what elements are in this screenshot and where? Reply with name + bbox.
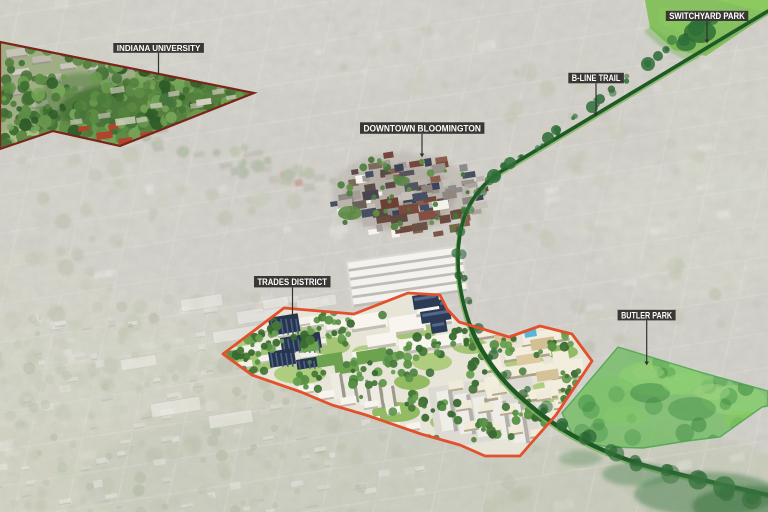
svg-text:DOWNTOWN BLOOMINGTON: DOWNTOWN BLOOMINGTON (364, 124, 481, 135)
svg-text:TRADES DISTRICT: TRADES DISTRICT (257, 276, 327, 287)
svg-text:INDIANA UNIVERSITY: INDIANA UNIVERSITY (117, 43, 201, 53)
svg-text:SWITCHYARD PARK: SWITCHYARD PARK (669, 11, 745, 21)
svg-text:B-LINE TRAIL: B-LINE TRAIL (572, 73, 621, 83)
svg-text:BUTLER PARK: BUTLER PARK (621, 310, 673, 320)
